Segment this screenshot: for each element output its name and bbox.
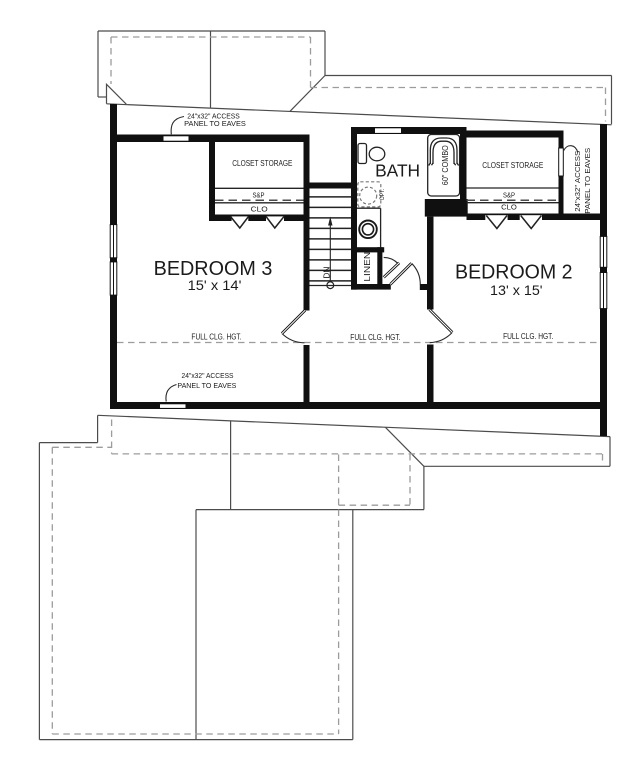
svg-text:CLOSET STORAGE: CLOSET STORAGE: [232, 158, 292, 168]
svg-text:FULL CLG. HGT.: FULL CLG. HGT.: [350, 333, 400, 342]
svg-text:OPT.: OPT.: [380, 189, 386, 200]
svg-text:BEDROOM 2: BEDROOM 2: [455, 261, 573, 284]
svg-text:LINEN: LINEN: [362, 252, 372, 282]
svg-text:FULL CLG. HGT.: FULL CLG. HGT.: [191, 332, 241, 341]
svg-text:PANEL TO EAVES: PANEL TO EAVES: [184, 119, 246, 128]
svg-text:S&P: S&P: [253, 193, 265, 200]
svg-text:CLOSET STORAGE: CLOSET STORAGE: [482, 160, 543, 170]
svg-text:CLO: CLO: [251, 204, 268, 213]
svg-text:15' x 14': 15' x 14': [188, 278, 242, 293]
svg-text:13' x 15': 13' x 15': [490, 283, 543, 298]
svg-text:BEDROOM 3: BEDROOM 3: [154, 257, 273, 280]
svg-text:DN: DN: [322, 266, 331, 278]
svg-text:CLO: CLO: [501, 203, 517, 212]
svg-text:BATH: BATH: [375, 160, 420, 180]
svg-text:24"x32" ACCESS: 24"x32" ACCESS: [573, 151, 582, 212]
svg-text:24"x32" ACCESS: 24"x32" ACCESS: [182, 371, 234, 380]
svg-text:PANEL TO EAVES: PANEL TO EAVES: [177, 381, 236, 390]
svg-text:PANEL TO EAVES: PANEL TO EAVES: [583, 148, 592, 214]
svg-text:FULL CLG. HGT.: FULL CLG. HGT.: [503, 332, 553, 341]
svg-text:60" COMBO: 60" COMBO: [441, 145, 450, 185]
svg-text:S&P: S&P: [503, 193, 515, 200]
